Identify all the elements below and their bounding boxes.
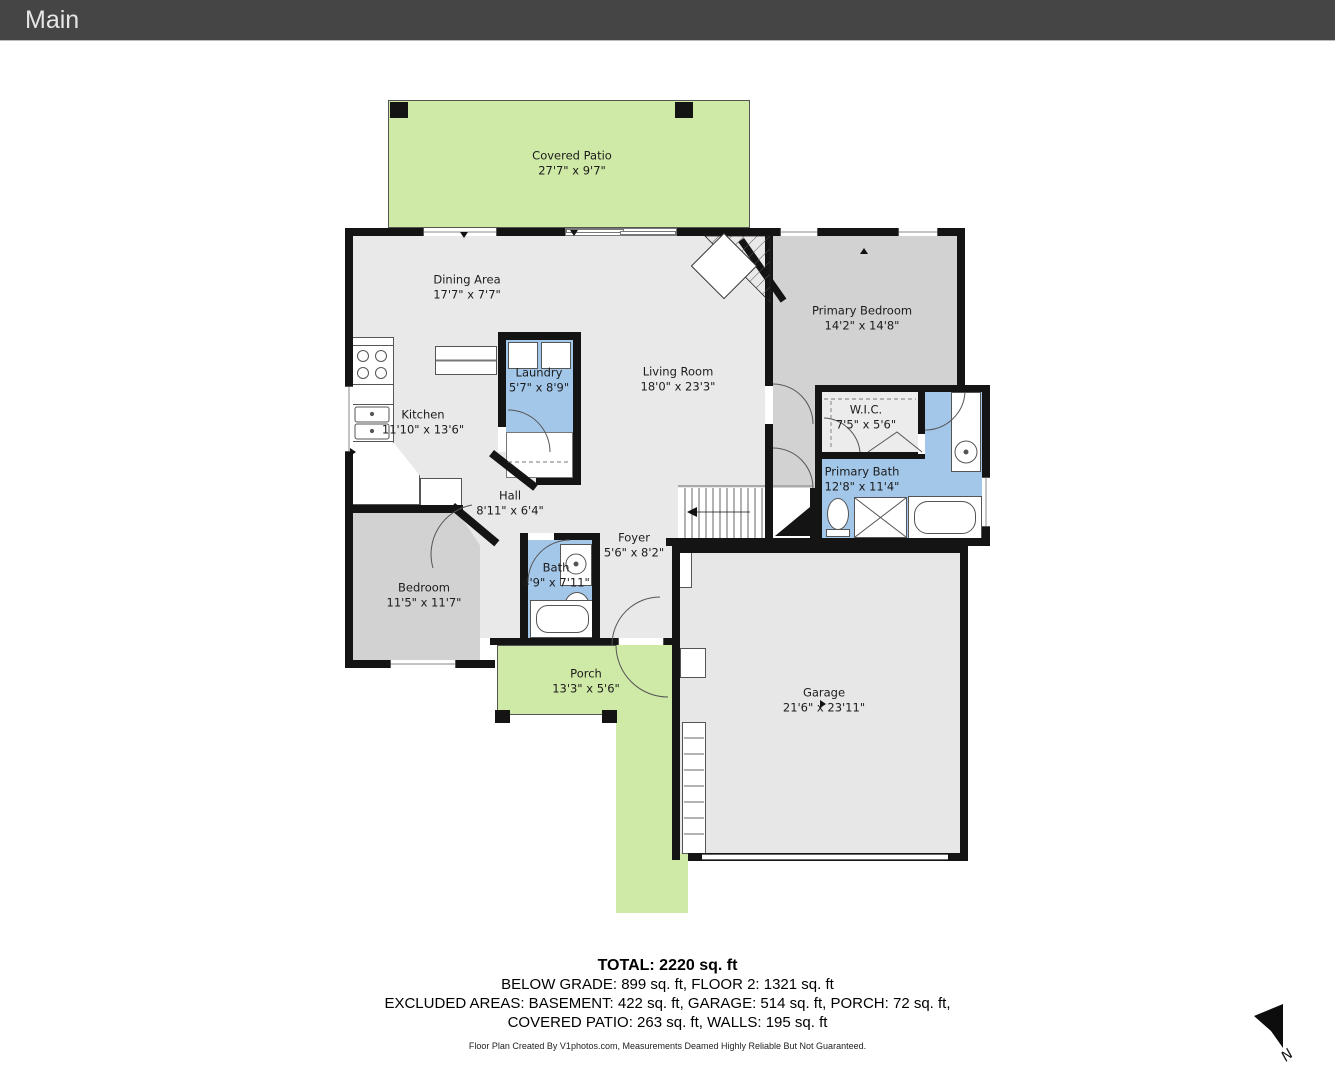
patio-post	[675, 102, 693, 118]
wall	[822, 452, 925, 459]
wall	[957, 228, 965, 388]
summary-total: TOTAL: 2220 sq. ft	[0, 956, 1335, 975]
area-summary: TOTAL: 2220 sq. ft BELOW GRADE: 899 sq. …	[0, 956, 1335, 1051]
basement-stairs	[682, 722, 706, 854]
door-opening	[918, 434, 925, 454]
porch-post	[495, 710, 510, 723]
room-label-laundry: Laundry5'7" x 8'9"	[509, 366, 569, 395]
floor-tab-bar: Main	[0, 0, 1335, 41]
garage-door	[702, 854, 948, 860]
wall	[765, 424, 773, 545]
staircase	[678, 488, 813, 538]
room-label-primary-bath: Primary Bath12'8" x 11'4"	[825, 465, 900, 494]
primary-toilet	[827, 498, 849, 530]
room-label-bedroom: Bedroom11'5" x 11'7"	[387, 581, 462, 610]
wall	[592, 533, 600, 645]
wall	[677, 228, 780, 236]
porch-post	[602, 710, 617, 723]
summary-line2: BELOW GRADE: 899 sq. ft, FLOOR 2: 1321 s…	[0, 975, 1335, 994]
summary-line3: EXCLUDED AREAS: BASEMENT: 422 sq. ft, GA…	[0, 994, 1335, 1013]
door-opening	[618, 638, 664, 645]
stove	[352, 345, 394, 385]
shower	[854, 497, 907, 538]
wall	[982, 392, 990, 477]
wall	[664, 638, 672, 645]
window	[390, 660, 456, 668]
window	[982, 477, 990, 527]
room-label-covered-patio: Covered Patio27'7" x 9'7"	[532, 149, 612, 178]
wall	[345, 228, 423, 236]
wall	[810, 488, 818, 538]
door-opening	[528, 533, 554, 540]
kitchen-island	[435, 346, 497, 375]
room-label-wic: W.I.C.7'5" x 5'6"	[836, 403, 896, 432]
wall	[498, 332, 506, 427]
bathtub-basin	[536, 605, 589, 633]
wall	[345, 505, 463, 513]
wall	[818, 228, 898, 236]
floorplan-page: Main	[0, 0, 1335, 1080]
kitchen-peninsula	[420, 478, 462, 506]
room-label-kitchen: Kitchen11'10" x 13'6"	[382, 408, 464, 437]
wall	[672, 545, 680, 860]
room-label-living: Living Room18'0" x 23'3"	[641, 365, 716, 394]
window	[898, 228, 938, 236]
window	[345, 386, 353, 452]
wall	[765, 236, 773, 386]
stair-edge-line	[678, 485, 813, 487]
patio-post	[390, 102, 408, 118]
floor-tab-main[interactable]: Main	[0, 6, 79, 35]
primary-toilet-tank	[826, 529, 850, 537]
sliding-door-rail	[620, 231, 676, 235]
room-label-primary-bedroom: Primary Bedroom14'2" x 14'8"	[812, 304, 912, 333]
room-label-porch: Porch13'3" x 5'6"	[552, 667, 620, 696]
summary-line4: COVERED PATIO: 263 sq. ft, WALLS: 195 sq…	[0, 1013, 1335, 1032]
wall	[815, 385, 990, 392]
room-foyer	[600, 545, 672, 645]
primary-bathtub-basin	[914, 501, 976, 534]
room-label-garage: Garage21'6" x 23'11"	[783, 686, 865, 715]
room-label-foyer: Foyer5'6" x 8'2"	[604, 531, 664, 560]
wall	[573, 332, 581, 482]
door-opening	[765, 386, 773, 424]
garage-step	[680, 648, 706, 678]
wall	[960, 545, 968, 861]
hall-strip	[480, 545, 520, 638]
room-label-dining: Dining Area17'7" x 7'7"	[433, 273, 501, 302]
summary-disclaimer: Floor Plan Created By V1photos.com, Meas…	[0, 1041, 1335, 1051]
room-label-hall: Hall8'11" x 6'4"	[476, 489, 544, 518]
wall	[918, 392, 925, 434]
wall	[497, 228, 565, 236]
wall	[498, 332, 581, 340]
sliding-door-rail	[566, 229, 624, 233]
window	[780, 228, 818, 236]
room-label-bath: Bath4'9" x 7'11"	[522, 561, 590, 590]
door-opening	[498, 427, 506, 452]
wall	[536, 478, 581, 485]
wall	[554, 533, 600, 540]
window	[423, 228, 497, 236]
primary-bath-vanity	[951, 392, 981, 472]
wall	[672, 545, 968, 553]
wall	[490, 638, 620, 645]
